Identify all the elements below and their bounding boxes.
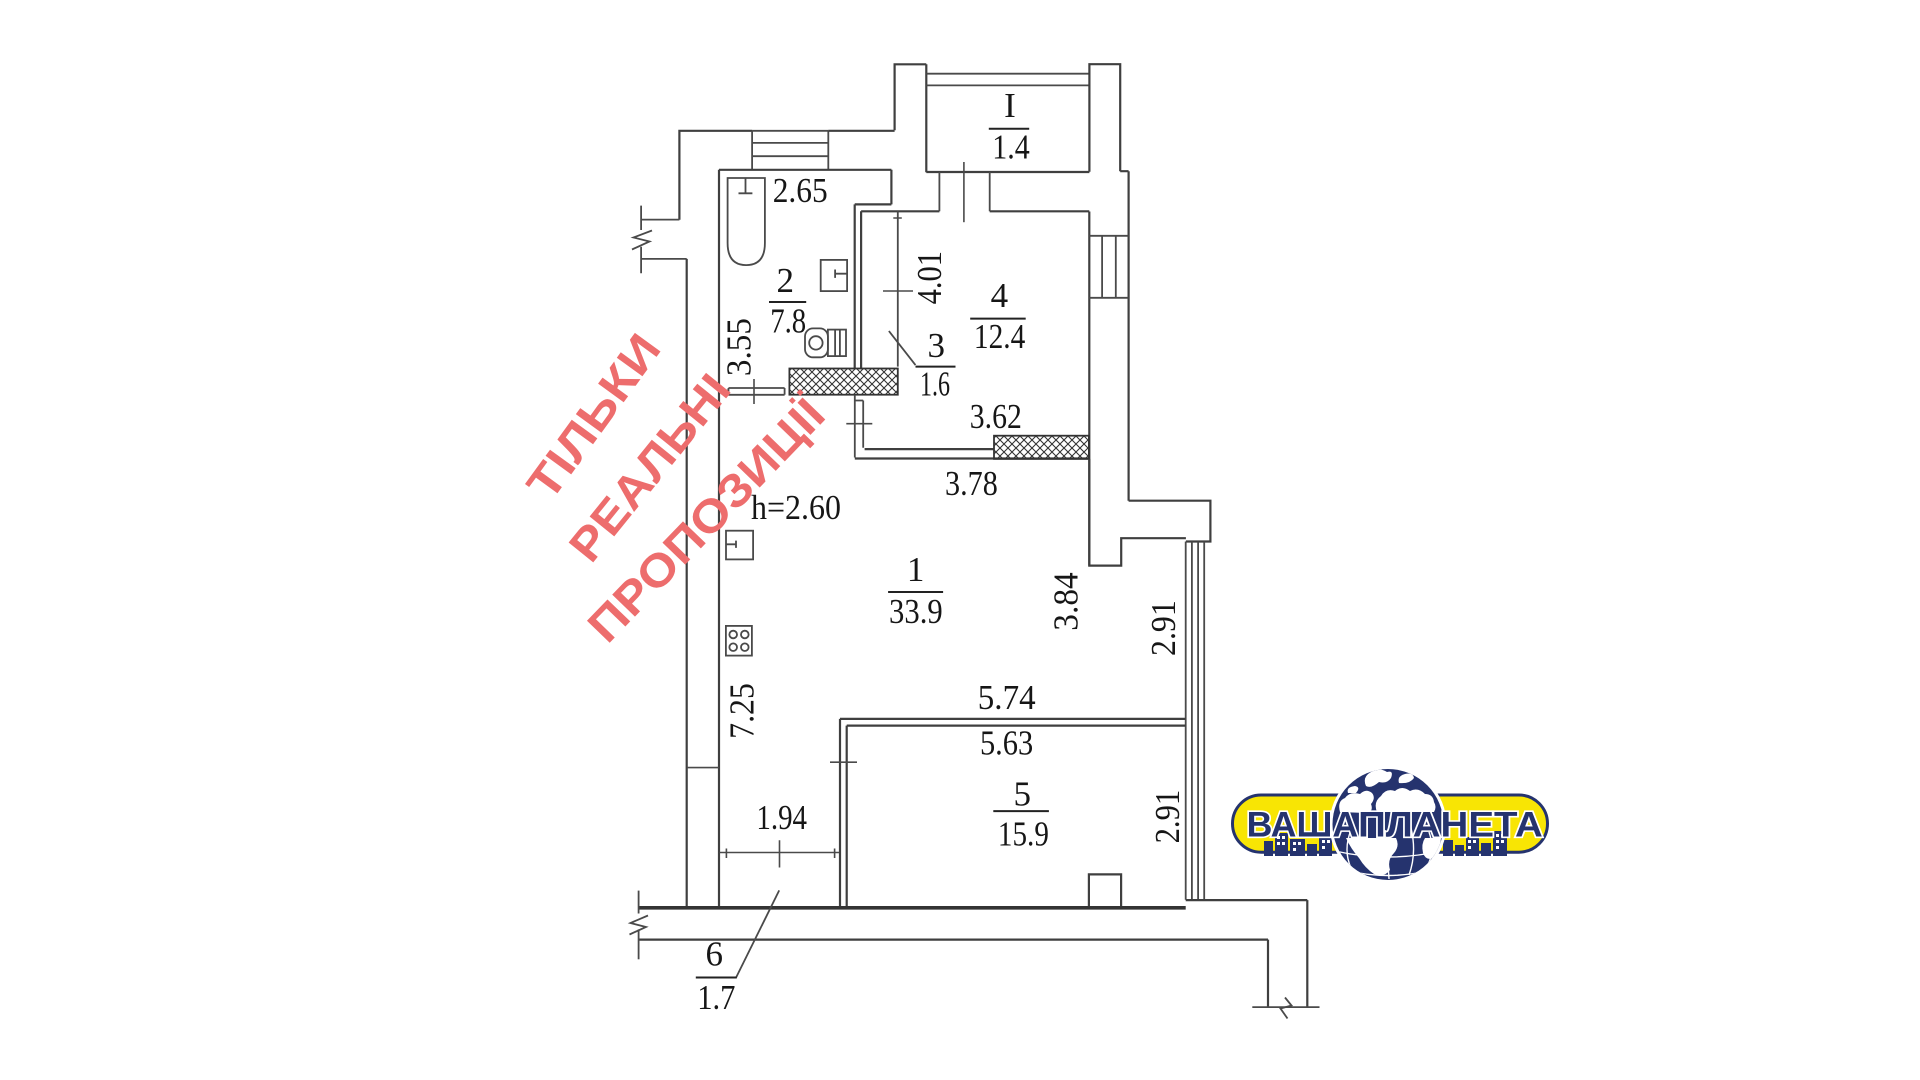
svg-text:33.9: 33.9 bbox=[889, 592, 943, 631]
svg-text:3.78: 3.78 bbox=[945, 464, 998, 503]
svg-text:1.6: 1.6 bbox=[920, 365, 950, 404]
svg-text:7.8: 7.8 bbox=[770, 302, 806, 341]
svg-text:1.4: 1.4 bbox=[992, 128, 1030, 167]
svg-text:I: I bbox=[1004, 86, 1016, 125]
svg-text:1.7: 1.7 bbox=[697, 978, 735, 1017]
svg-text:1.94: 1.94 bbox=[756, 798, 807, 837]
svg-text:3.55: 3.55 bbox=[719, 318, 758, 376]
svg-text:5.63: 5.63 bbox=[980, 723, 1033, 762]
svg-text:ВАША: ВАША bbox=[1247, 806, 1359, 845]
svg-text:1: 1 bbox=[907, 550, 925, 589]
svg-text:4.01: 4.01 bbox=[910, 251, 949, 304]
svg-text:3.62: 3.62 bbox=[970, 397, 1022, 436]
svg-text:2: 2 bbox=[776, 261, 794, 300]
svg-text:12.4: 12.4 bbox=[974, 317, 1025, 356]
svg-text:2.91: 2.91 bbox=[1148, 790, 1187, 844]
svg-text:7.25: 7.25 bbox=[723, 683, 762, 739]
svg-text:5.74: 5.74 bbox=[978, 678, 1036, 717]
svg-text:4: 4 bbox=[991, 276, 1009, 315]
svg-text:2.91: 2.91 bbox=[1144, 600, 1183, 656]
svg-text:6: 6 bbox=[706, 935, 724, 974]
svg-text:3: 3 bbox=[927, 326, 945, 365]
svg-text:2.65: 2.65 bbox=[773, 171, 828, 210]
svg-text:3.84: 3.84 bbox=[1047, 572, 1086, 630]
svg-text:15.9: 15.9 bbox=[998, 815, 1049, 854]
svg-text:5: 5 bbox=[1014, 775, 1032, 814]
svg-text:ПЛАНЕТА: ПЛАНЕТА bbox=[1358, 806, 1543, 845]
